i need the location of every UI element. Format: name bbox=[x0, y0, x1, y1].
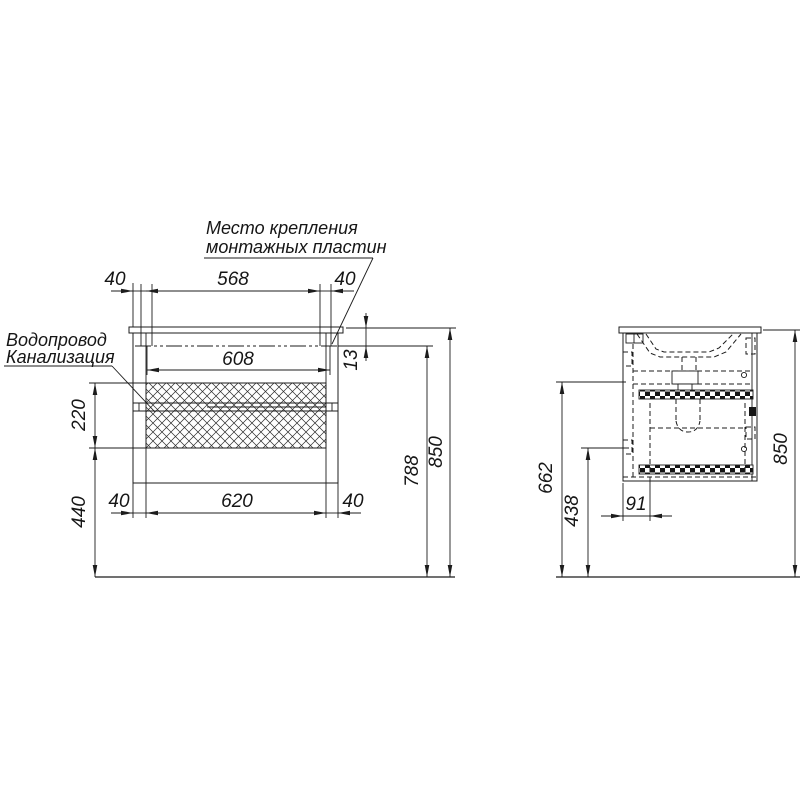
sewer-label: Канализация bbox=[6, 347, 115, 367]
dim-zone-floor: 440 bbox=[69, 496, 90, 528]
dim-countertop: 13 bbox=[341, 349, 362, 371]
mounting-label-line2: монтажных пластин bbox=[206, 237, 387, 257]
technical-drawing: 40 568 40 608 13 220 440 40 620 40 bbox=[0, 0, 800, 800]
dim-top-right: 40 bbox=[334, 269, 356, 290]
dim-top-left: 40 bbox=[104, 269, 126, 290]
wall-fixing bbox=[749, 407, 756, 416]
communications-zone-hatch bbox=[146, 383, 326, 448]
dim-front-offset: 91 bbox=[625, 494, 646, 515]
drawer-slide-upper bbox=[639, 390, 753, 399]
drain-fitting bbox=[672, 371, 698, 384]
dim-bottom-height: 438 bbox=[562, 495, 583, 527]
side-view bbox=[556, 327, 800, 577]
dim-bottom-right: 40 bbox=[342, 491, 364, 512]
dim-top-center: 568 bbox=[217, 269, 249, 290]
dim-bottom-left: 40 bbox=[108, 491, 130, 512]
front-countertop bbox=[129, 327, 343, 333]
dim-mount-width: 608 bbox=[222, 349, 254, 370]
drawer-slide-lower bbox=[639, 465, 753, 474]
mounting-label-line1: Место крепления bbox=[206, 218, 358, 238]
drawing-canvas: 40 568 40 608 13 220 440 40 620 40 bbox=[0, 0, 800, 800]
dim-zone-height: 220 bbox=[69, 399, 90, 432]
dim-total-front: 850 bbox=[426, 436, 447, 468]
dim-total-side: 850 bbox=[771, 433, 792, 465]
dim-connect-height: 662 bbox=[536, 462, 557, 494]
dim-mount-floor: 788 bbox=[402, 455, 423, 487]
side-cabinet-body bbox=[623, 333, 757, 481]
side-countertop bbox=[619, 327, 761, 333]
side-bracket bbox=[626, 334, 643, 343]
dim-bottom-center: 620 bbox=[221, 491, 253, 512]
